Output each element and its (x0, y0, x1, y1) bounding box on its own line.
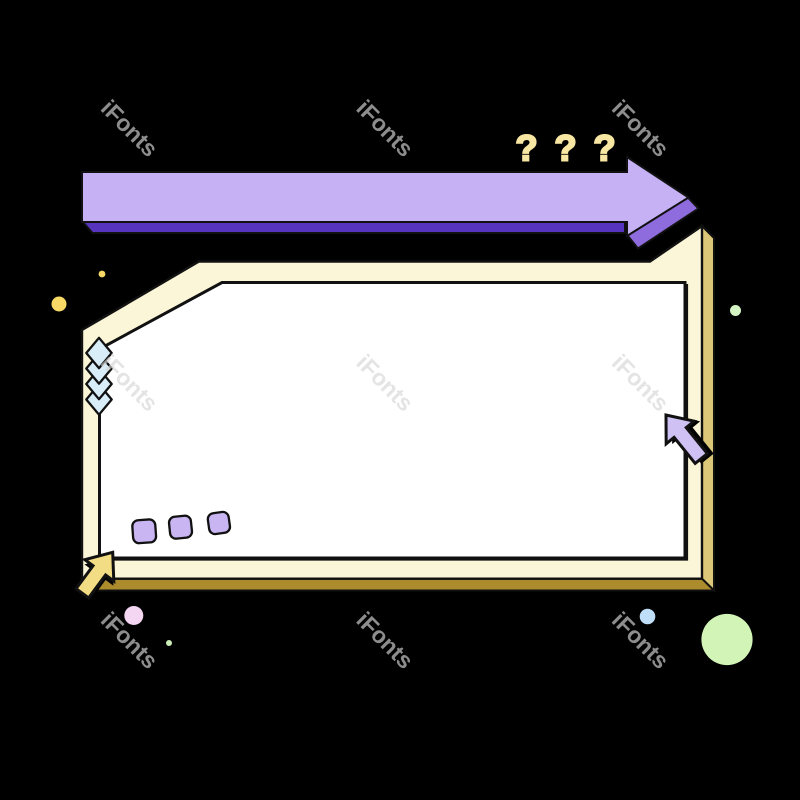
svg-text:?: ? (554, 128, 576, 169)
svg-text:?: ? (593, 128, 615, 169)
svg-text:?: ? (515, 128, 537, 169)
